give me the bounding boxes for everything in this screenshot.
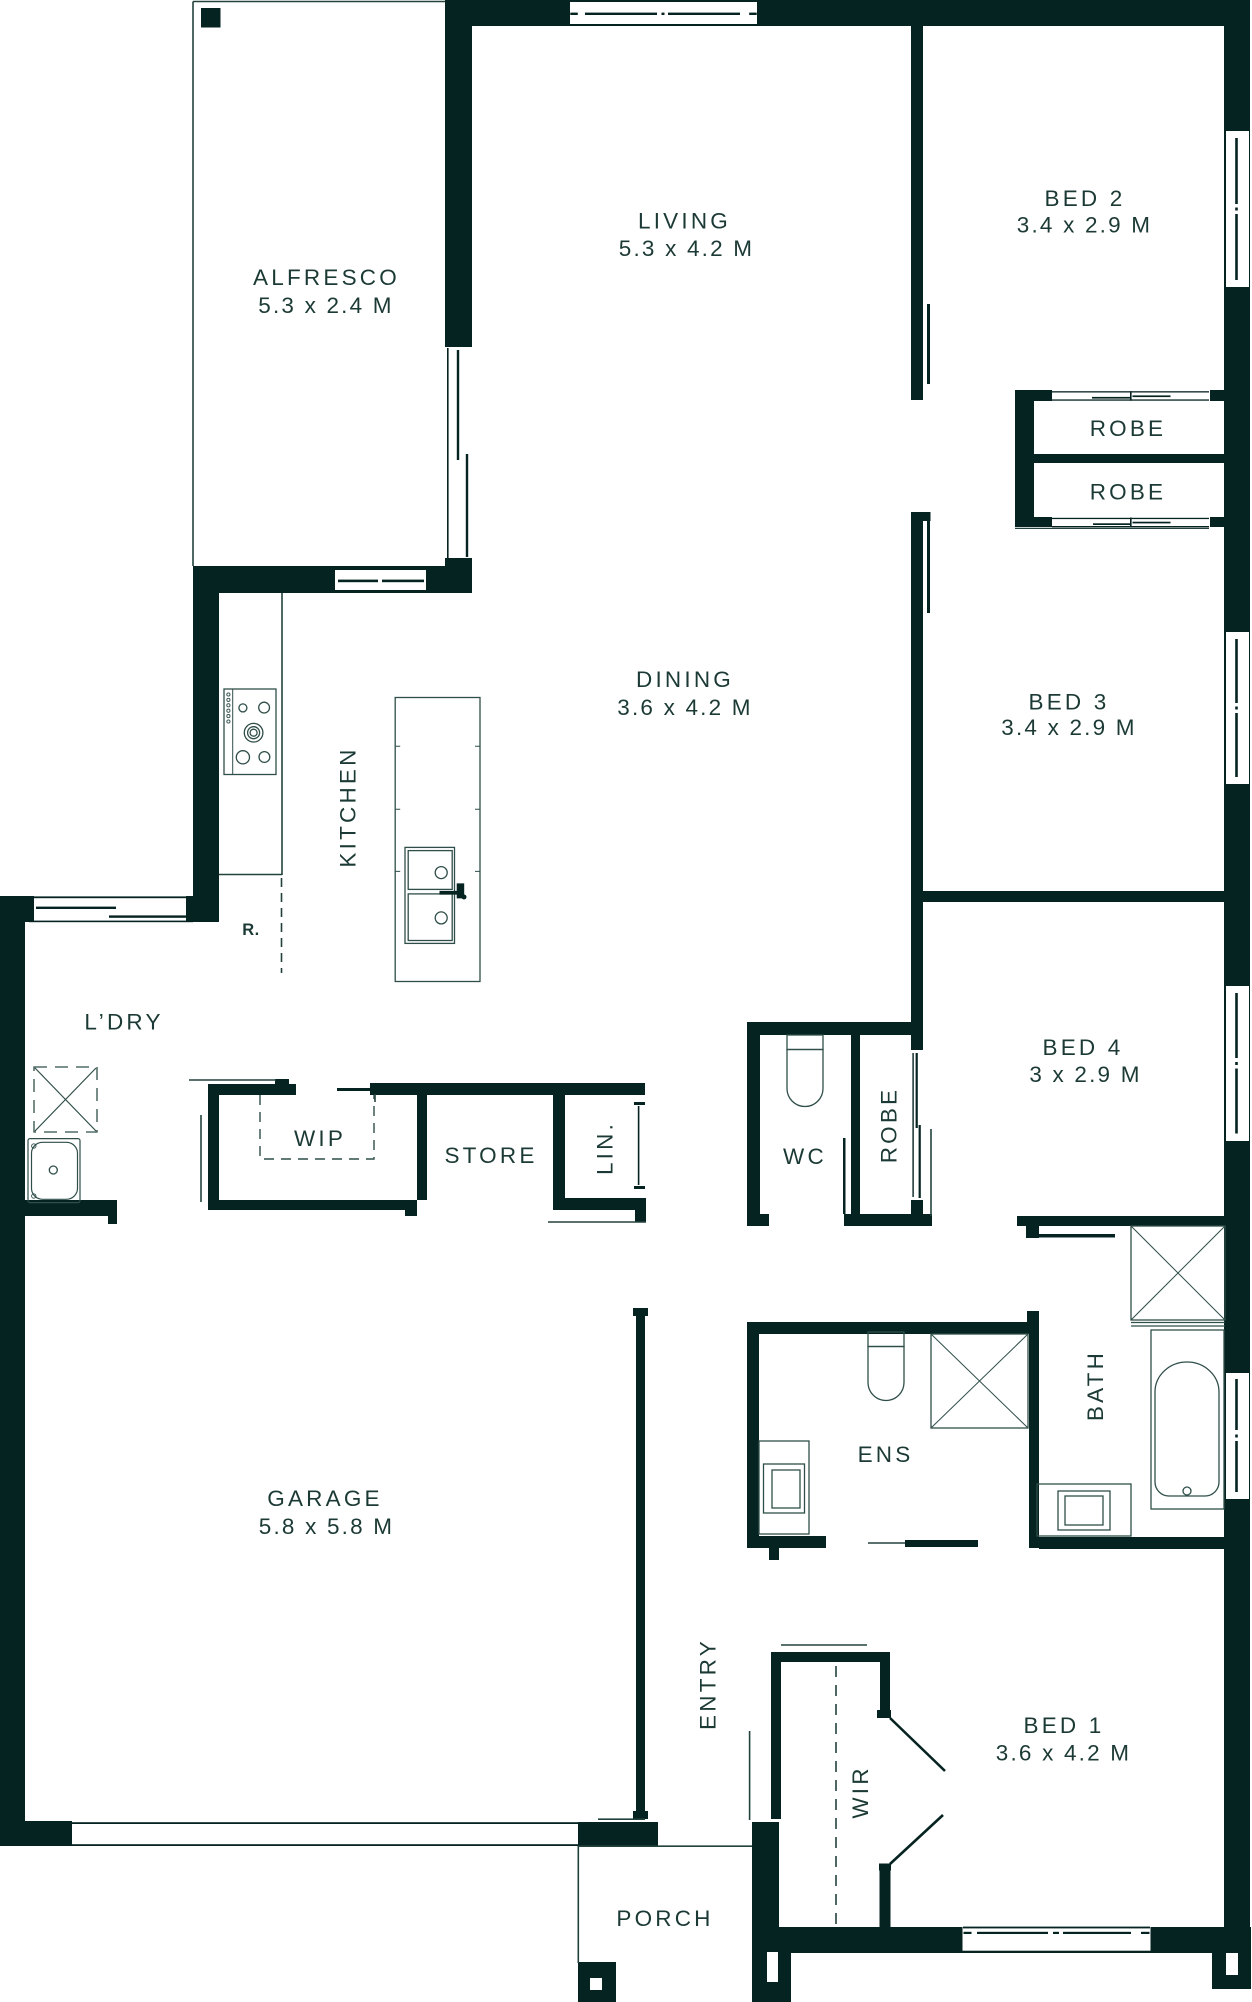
svg-text:3.6 x 4.2 M: 3.6 x 4.2 M [617, 695, 753, 720]
svg-text:ROBE: ROBE [1090, 480, 1167, 505]
svg-text:WC: WC [783, 1144, 827, 1169]
svg-text:ENS: ENS [858, 1442, 914, 1467]
svg-text:WIR: WIR [848, 1765, 873, 1818]
svg-text:STORE: STORE [444, 1143, 537, 1168]
svg-text:DINING: DINING [636, 667, 734, 692]
svg-text:3.6 x 4.2 M: 3.6 x 4.2 M [996, 1741, 1132, 1766]
svg-text:KITCHEN: KITCHEN [336, 746, 361, 867]
svg-text:GARAGE: GARAGE [267, 1486, 382, 1511]
svg-text:R.: R. [242, 921, 260, 939]
svg-text:5.3 x 2.4 M: 5.3 x 2.4 M [258, 293, 394, 318]
svg-text:3 x 2.9 M: 3 x 2.9 M [1029, 1062, 1141, 1087]
svg-text:LIN.: LIN. [593, 1121, 618, 1175]
svg-text:ALFRESCO: ALFRESCO [253, 265, 400, 290]
svg-text:LIVING: LIVING [638, 209, 731, 234]
svg-text:3.4 x 2.9 M: 3.4 x 2.9 M [1001, 715, 1137, 740]
svg-text:PORCH: PORCH [616, 1906, 713, 1931]
svg-text:BED 1: BED 1 [1023, 1713, 1104, 1738]
svg-text:BED 4: BED 4 [1042, 1035, 1123, 1060]
svg-text:3.4 x 2.9 M: 3.4 x 2.9 M [1017, 213, 1153, 238]
svg-text:ROBE: ROBE [877, 1087, 902, 1164]
svg-text:BED 2: BED 2 [1044, 186, 1125, 211]
svg-text:BED 3: BED 3 [1028, 690, 1109, 715]
svg-text:WIP: WIP [294, 1126, 346, 1151]
svg-text:5.3 x 4.2 M: 5.3 x 4.2 M [619, 236, 755, 261]
svg-text:BATH: BATH [1083, 1350, 1108, 1421]
svg-text:ENTRY: ENTRY [696, 1638, 721, 1730]
svg-text:5.8 x 5.8 M: 5.8 x 5.8 M [259, 1514, 395, 1539]
svg-text:ROBE: ROBE [1090, 416, 1167, 441]
svg-text:L’DRY: L’DRY [84, 1010, 163, 1035]
